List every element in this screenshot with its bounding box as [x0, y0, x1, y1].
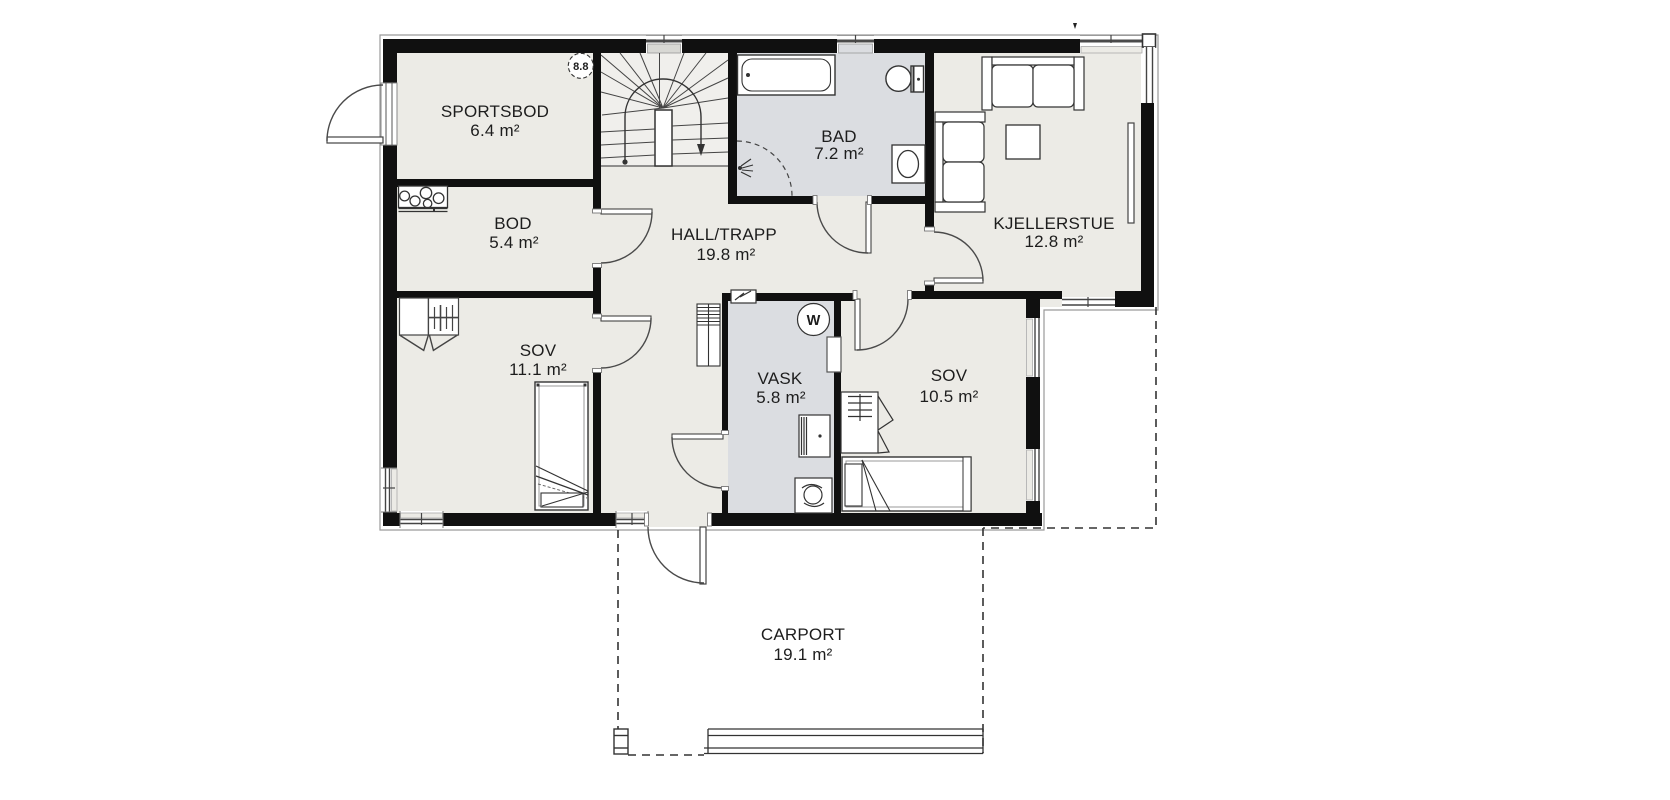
svg-text:BOD: BOD [494, 214, 531, 233]
svg-text:6.4 m²: 6.4 m² [470, 121, 520, 140]
svg-text:12.8 m²: 12.8 m² [1024, 232, 1083, 251]
svg-text:5.8 m²: 5.8 m² [756, 388, 806, 407]
svg-text:VASK: VASK [758, 369, 803, 388]
svg-text:SPORTSBOD: SPORTSBOD [441, 102, 549, 121]
svg-text:SOV: SOV [931, 366, 968, 385]
svg-text:KJELLERSTUE: KJELLERSTUE [993, 214, 1114, 233]
svg-text:10.5 m²: 10.5 m² [919, 387, 978, 406]
svg-text:HALL/TRAPP: HALL/TRAPP [671, 225, 777, 244]
svg-text:7.2 m²: 7.2 m² [814, 144, 864, 163]
svg-text:8.8: 8.8 [573, 61, 588, 73]
svg-text:19.8 m²: 19.8 m² [696, 245, 755, 264]
svg-text:W: W [807, 313, 821, 329]
svg-text:5.4 m²: 5.4 m² [489, 233, 539, 252]
svg-text:SOV: SOV [520, 341, 557, 360]
svg-text:CARPORT: CARPORT [761, 625, 845, 644]
svg-text:19.1 m²: 19.1 m² [773, 645, 832, 664]
svg-text:11.1 m²: 11.1 m² [509, 360, 567, 379]
